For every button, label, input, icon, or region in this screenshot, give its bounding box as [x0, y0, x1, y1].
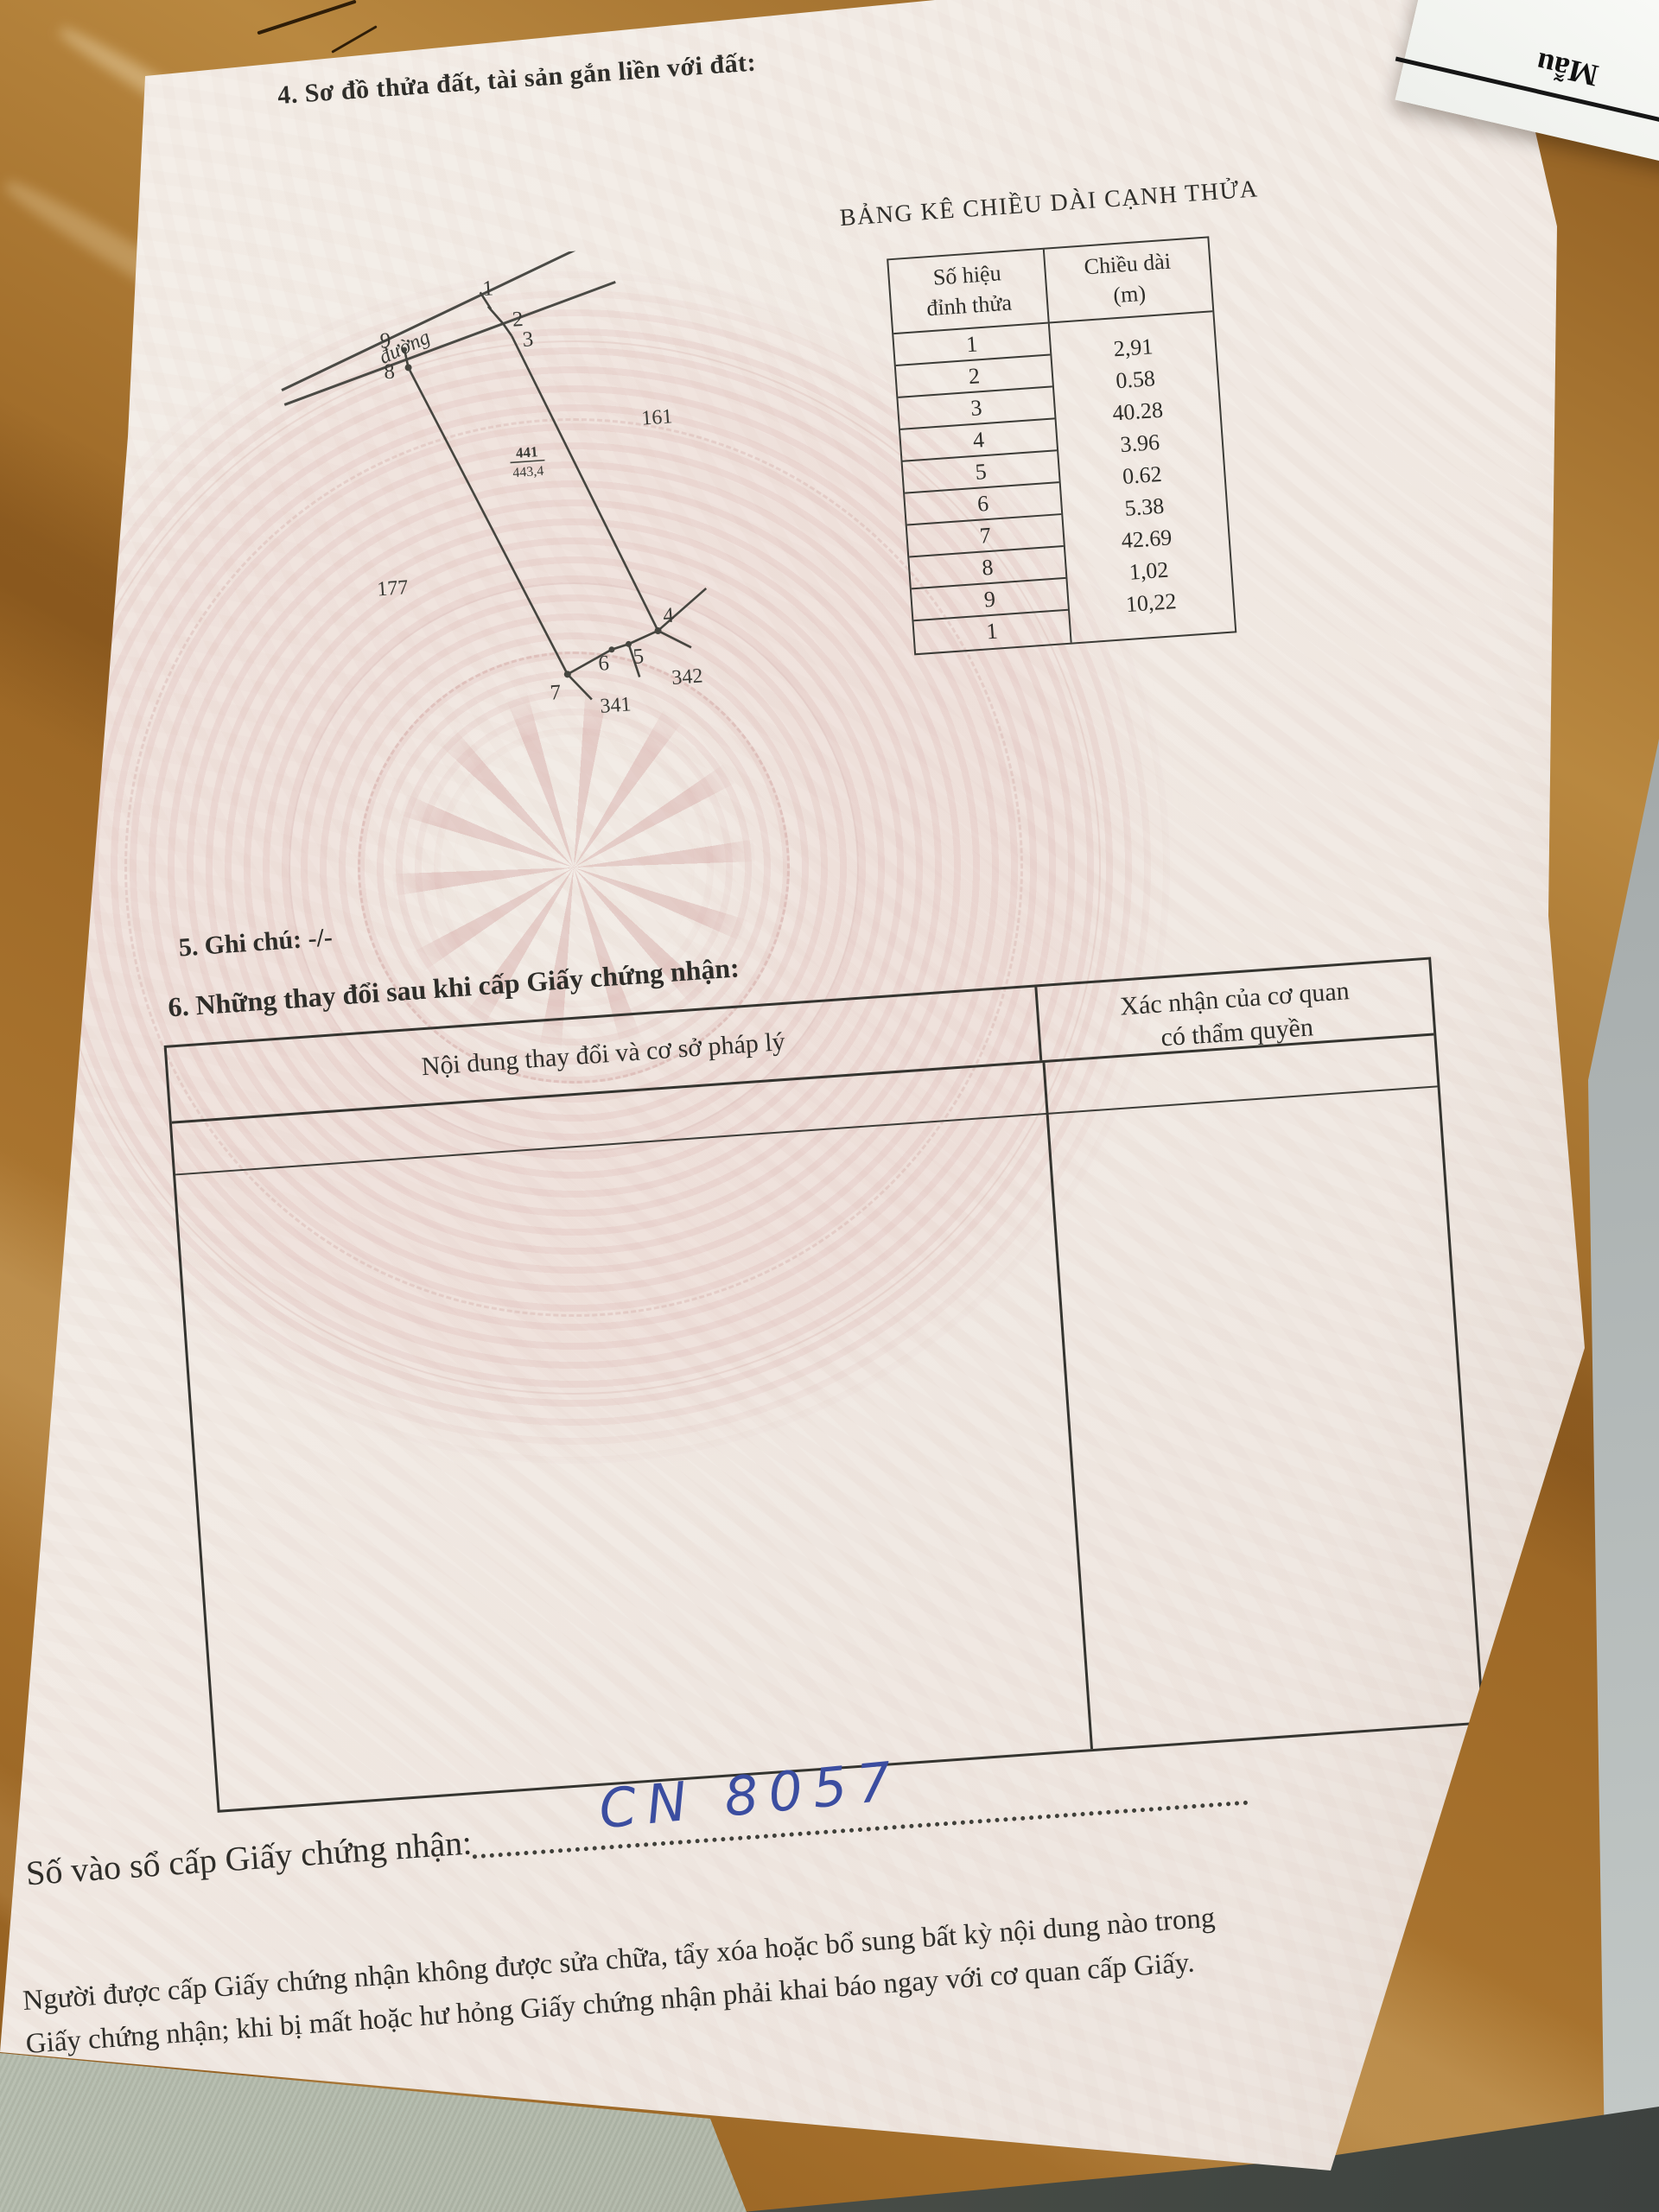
corner-card-label: Mẫu	[1533, 45, 1602, 94]
length-value: 10,22	[1069, 585, 1234, 622]
changes-table-divider	[1043, 1063, 1094, 1749]
vertex-label-8: 8	[383, 360, 395, 385]
issuance-label: Số vào sổ cấp Giấy chứng nhận:	[24, 1821, 473, 1893]
section4-heading: 4. Sơ đồ thửa đất, tài sản gắn liền với …	[276, 48, 757, 111]
length-value: 2,91	[1051, 329, 1216, 366]
changes-col2-header: Xác nhận của cơ quan có thẩm quyền	[1038, 960, 1434, 1060]
vertex-label-4: 4	[662, 604, 675, 628]
length-value: 0.62	[1060, 457, 1225, 494]
length-value: 1,02	[1066, 553, 1231, 590]
length-value: 5.38	[1062, 489, 1227, 526]
length-column: 2,910.5840.283.960.625.3842.691,0210,22	[1050, 312, 1235, 642]
vertex-column: 1234567891	[893, 324, 1071, 654]
section5-note: 5. Ghi chú: -/-	[178, 923, 334, 963]
parcel-number-area-label: 441 443,4	[509, 443, 546, 481]
neighbor-parcel-341: 341	[600, 693, 632, 717]
vertex-label-9: 9	[379, 329, 391, 353]
changes-table: Nội dung thay đổi và cơ sở pháp lý Xác n…	[164, 957, 1485, 1812]
neighbor-parcel-161: 161	[640, 405, 673, 429]
vertex-label-7: 7	[550, 681, 562, 705]
length-table-title: BẢNG KÊ CHIỀU DÀI CẠNH THỬA	[747, 169, 1352, 239]
wood-scratch-mark	[331, 25, 377, 54]
vertex-label-1: 1	[482, 276, 494, 301]
neighbor-parcel-177: 177	[377, 576, 410, 601]
vertex-label-6: 6	[598, 652, 610, 676]
length-table-col1-header: Số hiệu đỉnh thửa	[888, 250, 1049, 334]
vertex-label-5: 5	[632, 645, 645, 669]
legal-footer: Người được cấp Giấy chứng nhận không đượ…	[22, 1885, 1389, 2066]
wood-scratch-mark	[257, 0, 356, 35]
length-value: 0.58	[1053, 361, 1218, 398]
svg-text:441: 441	[515, 443, 538, 461]
length-table-col2-header: Chiều dài (m)	[1045, 238, 1212, 321]
svg-text:443,4: 443,4	[512, 464, 544, 480]
certificate-paper: 4. Sơ đồ thửa đất, tài sản gắn liền với …	[0, 0, 1659, 2212]
photo-of-certificate: 4. Sơ đồ thửa đất, tài sản gắn liền với …	[0, 0, 1659, 2212]
length-value: 40.28	[1055, 393, 1220, 430]
vertex-label-3: 3	[522, 327, 534, 352]
length-table: Số hiệu đỉnh thửa Chiều dài (m) 12345678…	[887, 236, 1236, 655]
length-value: 42.69	[1065, 521, 1230, 558]
parcel-diagram: đường 9 8 1 2 3 7 6 5 4 161 177 341 342 …	[258, 231, 899, 807]
length-value: 3.96	[1058, 425, 1223, 462]
neighbor-parcel-342: 342	[671, 664, 703, 689]
